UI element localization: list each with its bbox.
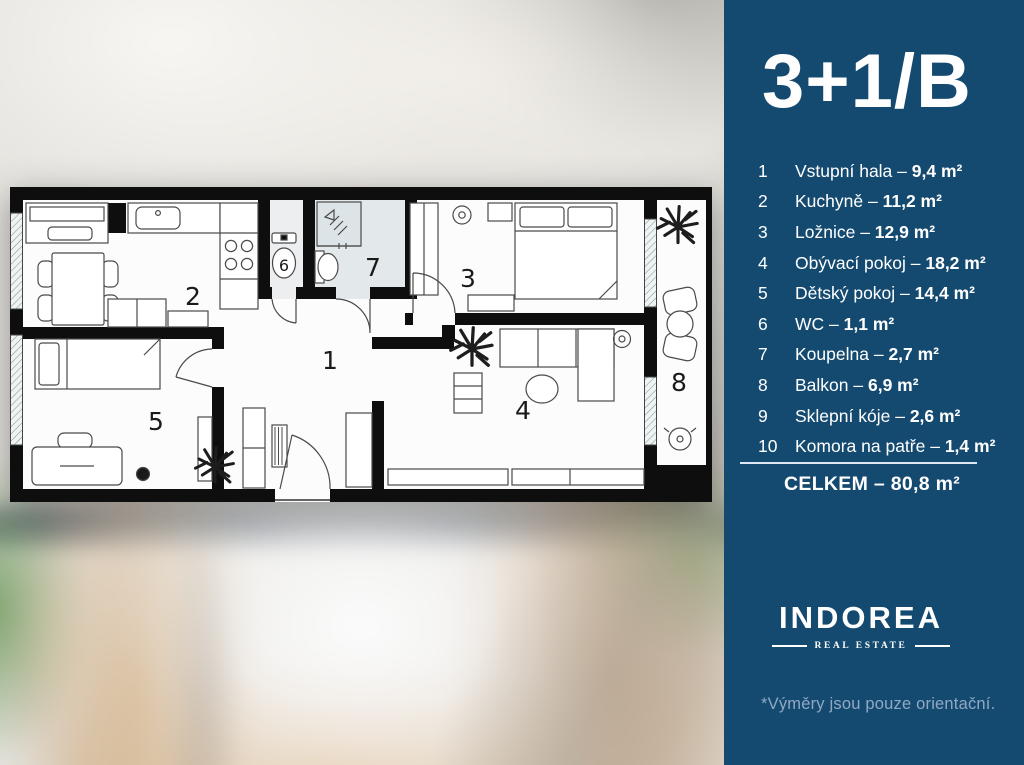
room-name: Sklepní kóje [795, 406, 890, 426]
room-row: 9 Sklepní kóje – 2,6 m² [758, 401, 1008, 432]
room-number: 4 [758, 253, 795, 274]
room-separator: – [824, 314, 843, 334]
room-entry: Koupelna – 2,7 m² [795, 344, 939, 365]
room-name: Koupelna [795, 344, 869, 364]
room-area: 9,4 m² [912, 161, 963, 181]
room-number: 8 [758, 375, 795, 396]
room-area: 2,6 m² [910, 406, 961, 426]
room-entry: Ložnice – 12,9 m² [795, 222, 935, 243]
room-entry: Vstupní hala – 9,4 m² [795, 161, 962, 182]
plan-label-bathroom: 7 [365, 253, 381, 282]
room-name: Kuchyně [795, 191, 863, 211]
room-row: 6 WC – 1,1 m² [758, 309, 1008, 340]
floor-plan: 1 2 3 4 5 6 7 8 [10, 187, 712, 502]
room-row: 8 Balkon – 6,9 m² [758, 370, 1008, 401]
room-number: 1 [758, 161, 795, 182]
plan-label-living: 4 [515, 396, 531, 425]
room-separator: – [890, 406, 909, 426]
plan-label-wc: 6 [279, 256, 289, 275]
room-name: WC [795, 314, 824, 334]
room-area: 12,9 m² [875, 222, 935, 242]
room-entry: Kuchyně – 11,2 m² [795, 191, 942, 212]
room-separator: – [855, 222, 874, 242]
room-separator: – [849, 375, 868, 395]
room-entry: Dětský pokoj – 14,4 m² [795, 283, 975, 304]
room-name: Obývací pokoj [795, 253, 906, 273]
layout-title: 3+1/B [762, 44, 972, 120]
room-number: 10 [758, 436, 795, 457]
room-area: 1,1 m² [844, 314, 895, 334]
plan-label-bedroom: 3 [460, 264, 476, 293]
room-name: Ložnice [795, 222, 855, 242]
room-name: Dětský pokoj [795, 283, 895, 303]
room-separator: – [863, 191, 882, 211]
room-entry: WC – 1,1 m² [795, 314, 894, 335]
room-row: 2 Kuchyně – 11,2 m² [758, 187, 1008, 218]
room-entry: Sklepní kóje – 2,6 m² [795, 406, 960, 427]
room-number: 5 [758, 283, 795, 304]
room-area: 2,7 m² [888, 344, 939, 364]
room-row: 7 Koupelna – 2,7 m² [758, 340, 1008, 371]
total-divider-line [740, 462, 977, 464]
room-row: 4 Obývací pokoj – 18,2 m² [758, 248, 1008, 279]
room-entry: Komora na patře – 1,4 m² [795, 436, 995, 457]
room-entry: Balkon – 6,9 m² [795, 375, 919, 396]
brand-name: INDOREA [772, 602, 950, 633]
room-area: 11,2 m² [883, 191, 942, 211]
room-separator: – [892, 161, 911, 181]
room-name: Balkon [795, 375, 849, 395]
total-area: CELKEM – 80,8 m² [784, 473, 960, 496]
room-number: 2 [758, 191, 795, 212]
room-number: 6 [758, 314, 795, 335]
room-separator: – [895, 283, 914, 303]
tagline-text: REAL ESTATE [815, 641, 908, 651]
room-area: 18,2 m² [925, 253, 985, 273]
tagline-left-rule [772, 645, 807, 647]
room-separator: – [925, 436, 944, 456]
plan-label-kitchen: 2 [185, 282, 201, 311]
room-name: Vstupní hala [795, 161, 892, 181]
room-list: 1 Vstupní hala – 9,4 m² 2 Kuchyně – 11,2… [758, 156, 1008, 462]
info-panel: 3+1/B 1 Vstupní hala – 9,4 m² 2 Kuchyně … [724, 0, 1024, 765]
room-row: 3 Ložnice – 12,9 m² [758, 217, 1008, 248]
room-area: 14,4 m² [915, 283, 975, 303]
room-number: 9 [758, 406, 795, 427]
room-name: Komora na patře [795, 436, 925, 456]
room-separator: – [906, 253, 925, 273]
room-number: 7 [758, 344, 795, 365]
room-row: 5 Dětský pokoj – 14,4 m² [758, 278, 1008, 309]
room-row: 10 Komora na patře – 1,4 m² [758, 431, 1008, 462]
room-entry: Obývací pokoj – 18,2 m² [795, 253, 986, 274]
room-area: 1,4 m² [945, 436, 996, 456]
real-estate-floorplan-card: 1 2 3 4 5 6 7 8 3+1/B 1 Vstupní hala – 9… [0, 0, 1024, 765]
plan-label-hall: 1 [322, 346, 338, 375]
room-number: 3 [758, 222, 795, 243]
room-area: 6,9 m² [868, 375, 919, 395]
plan-label-balcony: 8 [671, 368, 687, 397]
disclaimer-note: *Výměry jsou pouze orientační. [761, 695, 995, 714]
plan-label-kids: 5 [148, 407, 164, 436]
brand-tagline: REAL ESTATE [772, 641, 950, 651]
brand-logo: INDOREA REAL ESTATE [772, 602, 950, 651]
room-row: 1 Vstupní hala – 9,4 m² [758, 156, 1008, 187]
room-separator: – [869, 344, 888, 364]
tagline-right-rule [915, 645, 950, 647]
